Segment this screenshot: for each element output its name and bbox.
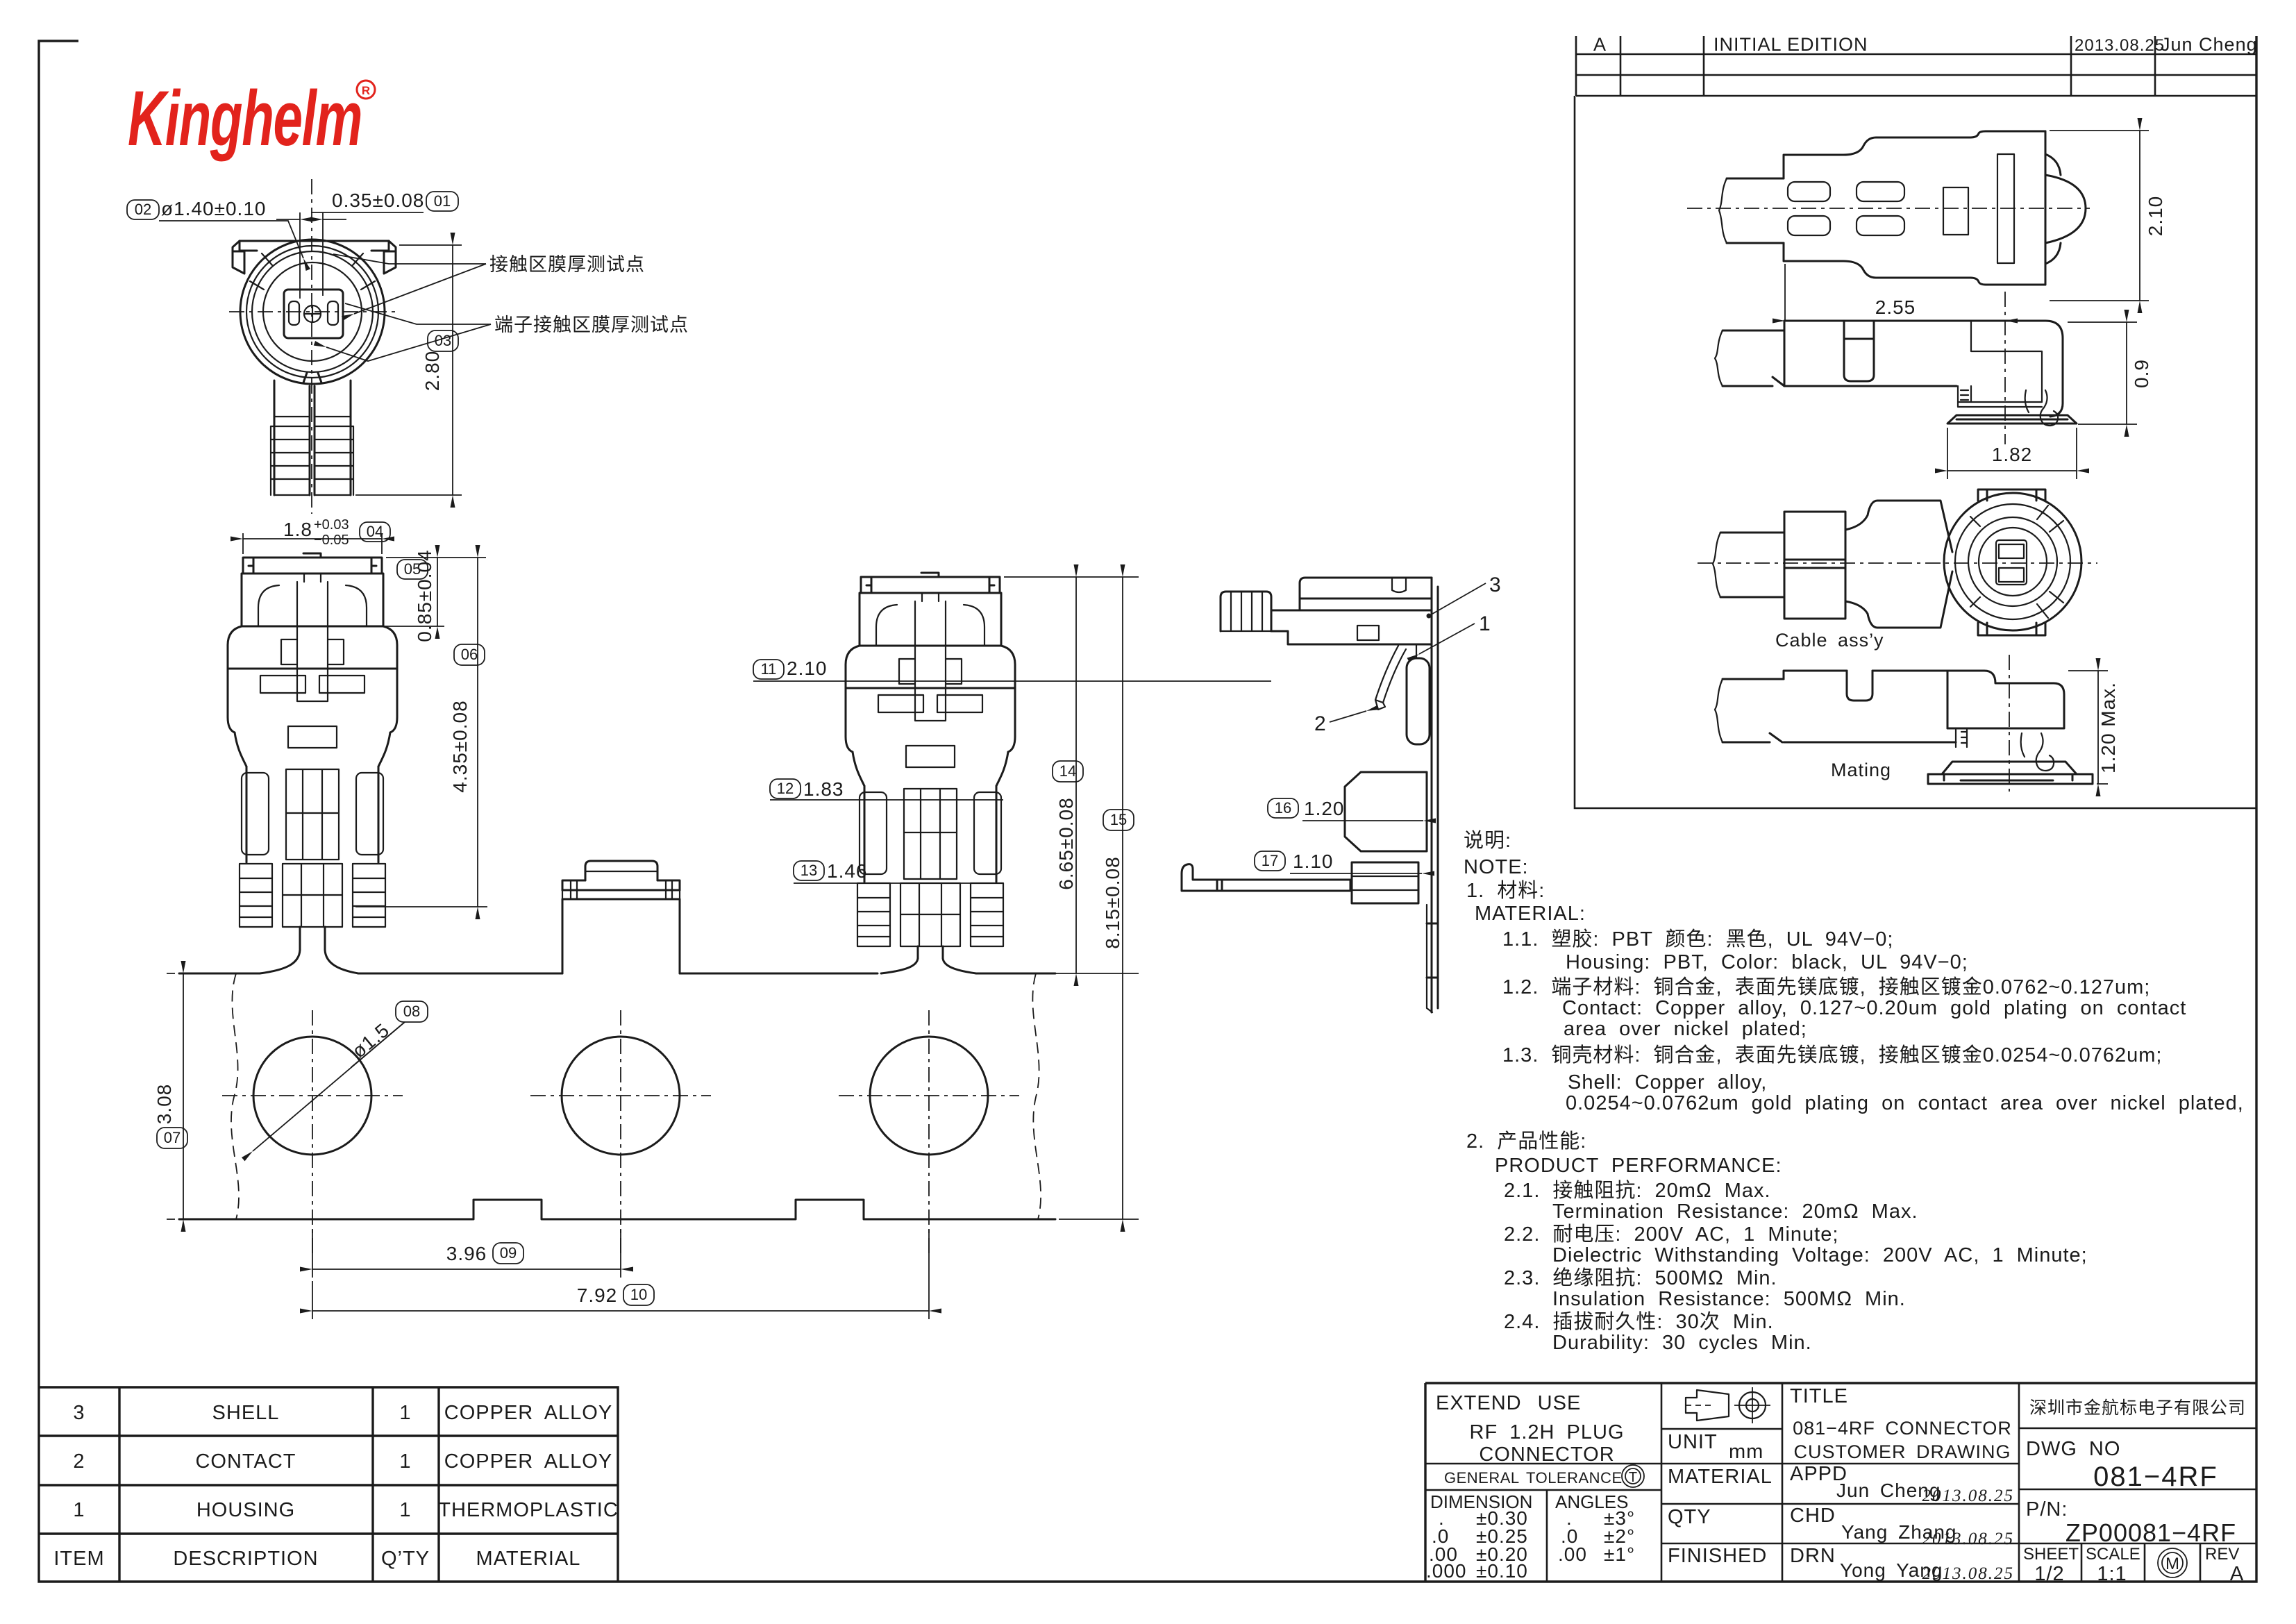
svg-text:0.85±0.04: 0.85±0.04 [414,549,435,642]
svg-text:CUSTOMER DRAWING: CUSTOMER DRAWING [1793,1441,2011,1462]
svg-text:HOUSING: HOUSING [196,1499,295,1521]
svg-text:ø1.40±0.10: ø1.40±0.10 [161,198,266,219]
svg-text:.00: .00 [1558,1543,1587,1565]
svg-text:+0.03: +0.03 [314,517,349,533]
svg-text:MATERIAL:: MATERIAL: [1475,903,1586,925]
svg-text:INITIAL EDITION: INITIAL EDITION [1713,34,1868,55]
svg-text:081−4RF CONNECTOR: 081−4RF CONNECTOR [1793,1418,2012,1439]
svg-text:0.0254~0.0762um gold plating o: 0.0254~0.0762um gold plating on contact … [1566,1092,2244,1114]
svg-text:GENERAL TOLERANCE: GENERAL TOLERANCE [1444,1469,1623,1487]
svg-text:2.10: 2.10 [2145,196,2166,237]
svg-text:Jun Cheng: Jun Cheng [2161,34,2258,55]
svg-text:2.55: 2.55 [1875,296,1916,318]
svg-text:1: 1 [399,1499,411,1521]
svg-text:1: 1 [399,1450,411,1473]
svg-text:17: 17 [1262,852,1278,869]
svg-text:R: R [362,84,370,97]
svg-text:2.1. 接触阻抗: 20mΩ Max.: 2.1. 接触阻抗: 20mΩ Max. [1504,1179,1771,1202]
svg-text:CONTACT: CONTACT [195,1450,296,1473]
svg-text:DESCRIPTION: DESCRIPTION [173,1548,318,1570]
svg-text:Insulation Resistance: 500MΩ M: Insulation Resistance: 500MΩ Min. [1552,1288,1906,1310]
svg-text:1.83: 1.83 [803,778,844,800]
svg-text:ITEM: ITEM [53,1548,104,1570]
svg-text:15: 15 [1110,811,1127,828]
svg-text:1.20 Max.: 1.20 Max. [2097,682,2119,773]
svg-text:09: 09 [500,1244,517,1262]
svg-text:SHEET: SHEET [2023,1545,2079,1564]
svg-text:T: T [1629,1470,1637,1485]
svg-text:1.2. 端子材料: 铜合金, 表面先镁底镀, 接触区镀金: 1.2. 端子材料: 铜合金, 表面先镁底镀, 接触区镀金0.0762~0.12… [1502,976,2150,998]
svg-text:CONNECTOR: CONNECTOR [1479,1443,1614,1466]
svg-text:14: 14 [1059,762,1076,780]
svg-text:A: A [1593,34,1607,55]
svg-text:RF 1.2H PLUG: RF 1.2H PLUG [1470,1421,1625,1443]
svg-text:2013.08.25: 2013.08.25 [1922,1530,2015,1548]
svg-text:Shell: Copper alloy,: Shell: Copper alloy, [1568,1071,1767,1094]
svg-text:1.8: 1.8 [283,519,312,540]
svg-text:2.80: 2.80 [421,351,443,392]
svg-text:Contact: Copper alloy, 0.127~0: Contact: Copper alloy, 0.127~0.20um gold… [1562,997,2186,1019]
svg-text:mm: mm [1729,1441,1763,1463]
svg-text:−0.05: −0.05 [314,533,349,548]
svg-text:11: 11 [761,660,777,678]
svg-text:8.15±0.08: 8.15±0.08 [1102,856,1123,948]
svg-text:M: M [2165,1555,2179,1573]
svg-text:2: 2 [1314,712,1326,735]
svg-text:Mating: Mating [1831,760,1891,780]
svg-text:Q’TY: Q’TY [381,1548,430,1570]
svg-text:2: 2 [73,1450,85,1473]
svg-text:±0.10: ±0.10 [1476,1560,1528,1582]
svg-text:TITLE: TITLE [1790,1385,1848,1407]
svg-text:0.9: 0.9 [2131,359,2152,388]
svg-text:area over nickel plated;: area over nickel plated; [1564,1018,1807,1040]
svg-text:12: 12 [777,780,794,797]
svg-text:.000: .000 [1426,1560,1467,1582]
svg-text:02: 02 [135,201,151,218]
svg-text:Termination Resistance: 20mΩ M: Termination Resistance: 20mΩ Max. [1552,1200,1918,1223]
svg-text:1:1: 1:1 [2097,1563,2127,1585]
svg-text:P/N:: P/N: [2026,1498,2068,1521]
svg-text:MATERIAL: MATERIAL [1668,1466,1773,1488]
svg-text:1.10: 1.10 [1293,851,1334,872]
svg-text:4.35±0.08: 4.35±0.08 [449,700,471,792]
svg-text:PRODUCT PERFORMANCE:: PRODUCT PERFORMANCE: [1495,1155,1782,1177]
svg-text:REV: REV [2205,1545,2239,1564]
svg-text:1: 1 [1479,612,1491,635]
svg-text:2013.08.25: 2013.08.25 [1922,1564,2015,1583]
svg-text:COPPER ALLOY: COPPER ALLOY [444,1450,612,1473]
svg-text:0.35±0.08: 0.35±0.08 [332,190,424,211]
svg-text:1.1. 塑胶: PBT 颜色: 黑色, UL 94V−: 1.1. 塑胶: PBT 颜色: 黑色, UL 94V−0; [1502,928,1893,951]
svg-text:04: 04 [367,523,383,540]
svg-text:1.82: 1.82 [1992,444,2033,465]
svg-text:1: 1 [73,1499,85,1521]
svg-text:A: A [2230,1563,2244,1585]
svg-text:6.65±0.08: 6.65±0.08 [1055,797,1077,889]
svg-text:2013.08.25: 2013.08.25 [2075,36,2165,55]
svg-text:FINISHED: FINISHED [1668,1545,1767,1567]
svg-text:2.3. 绝缘阻抗: 500MΩ Min.: 2.3. 绝缘阻抗: 500MΩ Min. [1504,1266,1777,1289]
svg-text:说明:: 说明: [1464,829,1511,852]
svg-text:3.08: 3.08 [153,1084,175,1125]
svg-text:08: 08 [403,1003,420,1020]
svg-text:7.92: 7.92 [577,1284,618,1306]
svg-text:Cable ass’y: Cable ass’y [1775,630,1884,651]
svg-text:深圳市金航标电子有限公司: 深圳市金航标电子有限公司 [2029,1398,2246,1418]
svg-text:2. 产品性能:: 2. 产品性能: [1466,1130,1586,1153]
svg-text:3: 3 [1489,574,1501,596]
svg-text:THERMOPLASTIC: THERMOPLASTIC [438,1499,619,1521]
svg-text:EXTEND USE: EXTEND USE [1436,1392,1581,1414]
svg-text:DRN: DRN [1790,1545,1836,1567]
svg-text:接触区膜厚测试点: 接触区膜厚测试点 [489,254,645,275]
svg-text:1.46: 1.46 [827,860,868,882]
svg-text:1/2: 1/2 [2034,1563,2064,1585]
svg-text:QTY: QTY [1668,1506,1711,1528]
svg-text:10: 10 [630,1286,647,1303]
svg-text:1: 1 [399,1402,411,1424]
svg-text:07: 07 [164,1129,181,1146]
svg-text:DWG NO: DWG NO [2026,1438,2120,1460]
svg-text:13: 13 [801,862,817,879]
svg-text:01: 01 [434,192,451,210]
svg-text:±1°: ±1° [1604,1543,1635,1565]
svg-text:ZP00081−4RF: ZP00081−4RF [2065,1518,2236,1547]
svg-text:1. 材料:: 1. 材料: [1466,879,1545,902]
svg-text:Dielectric Withstanding Voltag: Dielectric Withstanding Voltage: 200V AC… [1552,1244,2088,1266]
svg-text:SCALE: SCALE [2086,1545,2140,1564]
svg-text:端子接触区膜厚测试点: 端子接触区膜厚测试点 [494,315,689,335]
svg-text:3.96: 3.96 [446,1243,487,1264]
svg-text:1.20: 1.20 [1304,798,1345,819]
svg-text:NOTE:: NOTE: [1464,856,1529,878]
svg-text:06: 06 [461,646,478,663]
svg-text:COPPER ALLOY: COPPER ALLOY [444,1402,612,1424]
svg-text:2.4. 插拔耐久性: 30次 Min.: 2.4. 插拔耐久性: 30次 Min. [1504,1310,1774,1333]
svg-text:2.2. 耐电压: 200V AC, 1 Minute: 2.2. 耐电压: 200V AC, 1 Minute; [1504,1223,1838,1246]
svg-text:MATERIAL: MATERIAL [476,1548,581,1570]
svg-text:CHD: CHD [1790,1505,1836,1527]
svg-text:16: 16 [1275,799,1291,817]
svg-text:3: 3 [73,1402,85,1424]
svg-text:1.3. 铜壳材料: 铜合金, 表面先镁底镀, 接触区镀: 1.3. 铜壳材料: 铜合金, 表面先镁底镀, 接触区镀金0.0254~0.07… [1502,1044,2162,1066]
svg-text:UNIT: UNIT [1668,1431,1718,1453]
svg-text:Housing: PBT, Color: black, UL: Housing: PBT, Color: black, UL 94V−0; [1566,951,1968,973]
svg-text:Kinghelm: Kinghelm [128,75,362,162]
svg-text:Durability: 30 cycles Min.: Durability: 30 cycles Min. [1552,1332,1812,1354]
svg-text:SHELL: SHELL [212,1402,280,1424]
svg-text:081−4RF: 081−4RF [2093,1462,2218,1492]
svg-text:2.10: 2.10 [787,658,828,679]
svg-text:2013.08.25: 2013.08.25 [1922,1487,2015,1505]
